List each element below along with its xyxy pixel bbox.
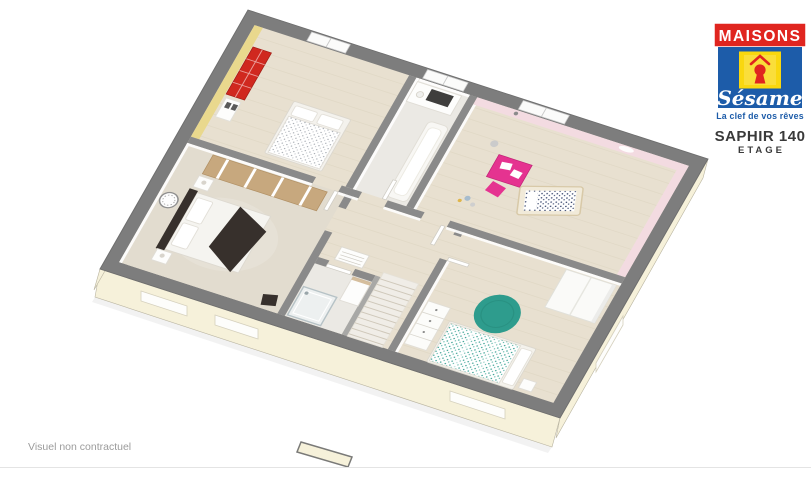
- brand-script-name: Sésame: [717, 86, 802, 110]
- disclaimer-text: Visuel non contractuel: [28, 441, 131, 453]
- floorplan-render: [0, 0, 811, 480]
- crib-pillow: [526, 192, 538, 209]
- page: { "brand": { "wordmark": "MAISONS", "scr…: [0, 0, 811, 480]
- plan-group: [100, 10, 708, 418]
- footer-divider: [0, 467, 811, 468]
- plan-title: SAPHIR 140: [698, 128, 811, 145]
- brand-keyhole-icon: [754, 64, 765, 83]
- chimney: [297, 442, 352, 467]
- crib: [517, 186, 584, 215]
- brand-wordmark: MAISONS: [719, 28, 802, 45]
- plan-subtitle: ETAGE: [698, 145, 811, 156]
- brand-logo: MAISONS Sésame La clef de vos rêves: [698, 16, 811, 128]
- accent-chair: [261, 294, 279, 306]
- brand-tagline: La clef de vos rêves: [716, 111, 804, 121]
